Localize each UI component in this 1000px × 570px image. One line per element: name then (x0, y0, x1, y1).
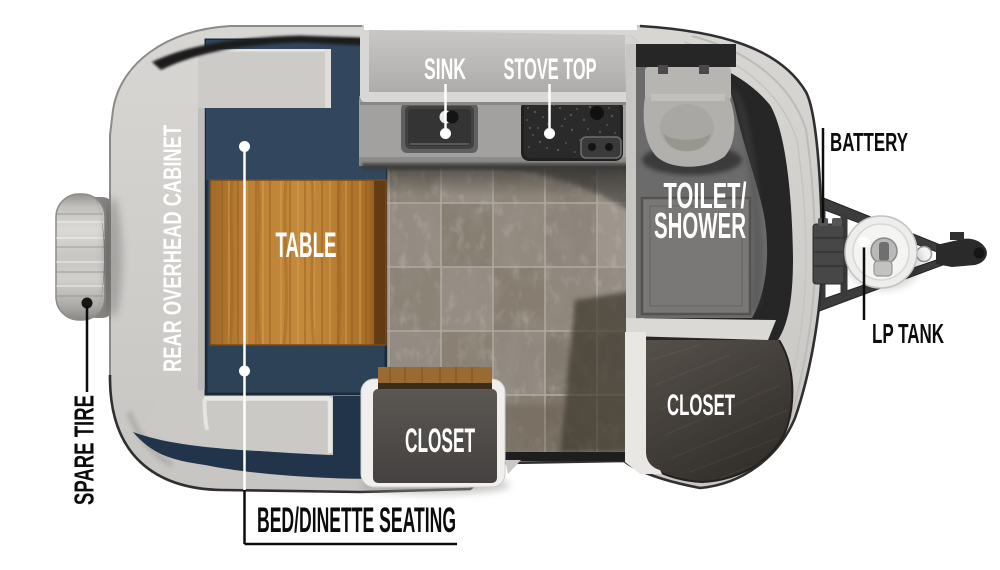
svg-text:CLOSET: CLOSET (405, 422, 475, 460)
svg-text:TABLE: TABLE (276, 226, 337, 265)
svg-text:SINK: SINK (424, 53, 466, 86)
svg-text:REAR OVERHEAD CABINET: REAR OVERHEAD CABINET (159, 125, 187, 372)
svg-text:CLOSET: CLOSET (667, 389, 735, 422)
svg-text:LP TANK: LP TANK (872, 318, 944, 349)
svg-text:BATTERY: BATTERY (830, 127, 908, 157)
svg-text:SPARE TIRE: SPARE TIRE (69, 395, 100, 505)
svg-text:BED/DINETTE SEATING: BED/DINETTE SEATING (257, 501, 456, 540)
svg-text:STOVE TOP: STOVE TOP (504, 53, 597, 86)
svg-text:SHOWER: SHOWER (654, 205, 746, 246)
